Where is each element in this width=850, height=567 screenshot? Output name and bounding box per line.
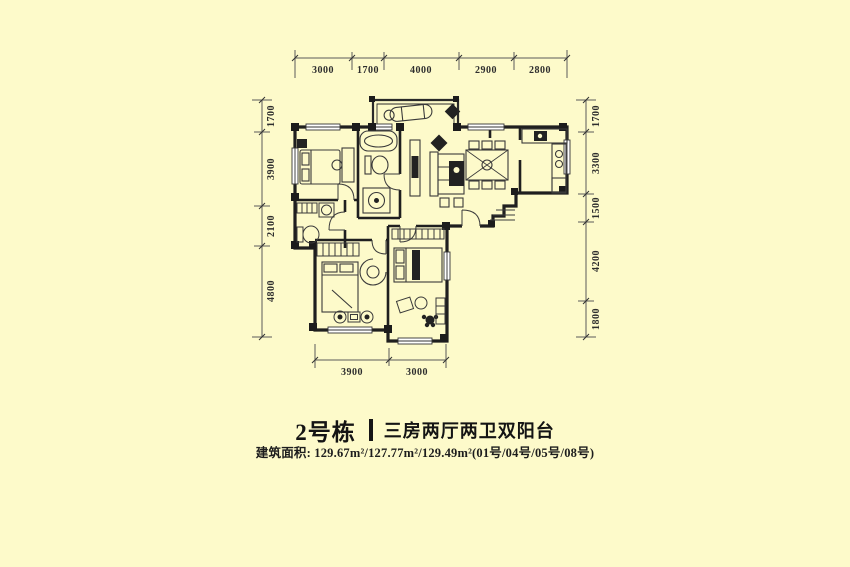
tv-cabinet bbox=[410, 140, 420, 196]
dim-label: 2800 bbox=[529, 65, 551, 76]
dim-label: 2100 bbox=[266, 215, 277, 237]
window bbox=[444, 252, 450, 280]
bed-third bbox=[394, 248, 442, 282]
window bbox=[328, 327, 372, 333]
window bbox=[398, 338, 432, 344]
dim-label: 1700 bbox=[591, 105, 602, 127]
dim-label: 1500 bbox=[591, 197, 602, 219]
dim-label: 3000 bbox=[312, 65, 334, 76]
wardrobe bbox=[317, 243, 359, 256]
dimension-right-labels: 1700 3300 1500 4200 1800 bbox=[591, 105, 602, 330]
dim-label: 4200 bbox=[591, 250, 602, 272]
dim-label: 2900 bbox=[475, 65, 497, 76]
dim-label: 4000 bbox=[410, 65, 432, 76]
chair-and-plant bbox=[396, 297, 445, 327]
sofa-set bbox=[430, 135, 464, 207]
windows bbox=[292, 124, 570, 344]
dim-label: 1700 bbox=[266, 105, 277, 127]
dining-table bbox=[466, 141, 508, 189]
balcony-rail bbox=[373, 100, 458, 127]
vanity-counter bbox=[297, 203, 334, 217]
dim-label: 4800 bbox=[266, 280, 277, 302]
washing-machine bbox=[363, 188, 390, 213]
window bbox=[564, 140, 570, 174]
window bbox=[292, 148, 298, 184]
title-divider bbox=[369, 419, 373, 441]
window bbox=[306, 124, 340, 130]
desk bbox=[332, 148, 354, 182]
dimension-left-labels: 1700 3900 2100 4800 bbox=[266, 105, 277, 302]
bed-second bbox=[322, 259, 386, 312]
toilet bbox=[365, 156, 388, 174]
structural-piers bbox=[291, 96, 567, 342]
plant-icons bbox=[334, 311, 373, 323]
bathtub bbox=[360, 131, 397, 151]
kitchen-counter bbox=[522, 129, 567, 193]
dim-label: 3000 bbox=[406, 367, 428, 378]
dim-label: 3300 bbox=[591, 152, 602, 174]
dimension-top-labels: 3000 1700 4000 2900 2800 bbox=[312, 65, 551, 76]
dimension-bottom-labels: 3900 3000 bbox=[341, 367, 428, 378]
floorplan-image: 3000 1700 4000 2900 2800 1700 3900 2100 … bbox=[0, 0, 850, 567]
dimension-bottom bbox=[312, 344, 449, 368]
area-label: 建筑面积: 129.67m²/127.77m²/129.49m²(01号/04号… bbox=[0, 442, 850, 461]
layout-label: 三房两厅两卫双阳台 bbox=[384, 421, 555, 441]
exterior-walls bbox=[295, 127, 567, 341]
dim-label: 3900 bbox=[266, 158, 277, 180]
window bbox=[468, 124, 504, 130]
dim-label: 1700 bbox=[357, 65, 379, 76]
dim-label: 1800 bbox=[591, 308, 602, 330]
floor-plan-svg: 3000 1700 4000 2900 2800 1700 3900 2100 … bbox=[0, 0, 850, 480]
lounge-chair bbox=[383, 104, 432, 123]
dim-label: 3900 bbox=[341, 367, 363, 378]
